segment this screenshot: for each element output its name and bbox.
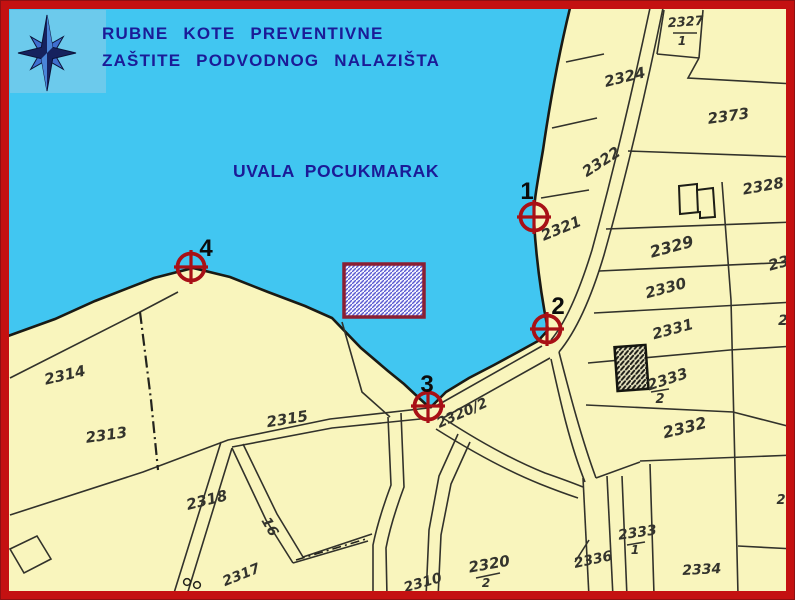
bay-name-label: UVALA POCUKMARAK xyxy=(233,161,439,182)
parcel-label: 1 xyxy=(678,34,686,48)
map-title-line2: ZAŠTITE PODVODNOG NALAZIŠTA xyxy=(102,47,440,74)
parcel-label: 2334 xyxy=(682,561,722,579)
site-marker-number-2: 2 xyxy=(551,293,564,320)
parcel-label: 1 xyxy=(631,543,639,557)
parcel-label: 2 xyxy=(776,493,785,508)
site-marker-number-3: 3 xyxy=(420,371,433,398)
parcel-label: 2 xyxy=(482,576,490,590)
map-title: RUBNE KOTE PREVENTIVNE ZAŠTITE PODVODNOG… xyxy=(102,20,440,74)
building-hatched xyxy=(615,345,649,391)
parcel-label: 2327 xyxy=(667,14,705,32)
parcel-label: 2 xyxy=(655,392,664,407)
site-area-rectangle xyxy=(344,264,424,317)
map-figure: 2327123242373232223282321232923233022331… xyxy=(0,0,795,600)
map-title-line1: RUBNE KOTE PREVENTIVNE xyxy=(102,20,440,47)
site-marker-number-1: 1 xyxy=(520,178,533,205)
map-canvas: 2327123242373232223282321232923233022331… xyxy=(0,0,795,600)
site-marker-number-4: 4 xyxy=(199,235,213,262)
